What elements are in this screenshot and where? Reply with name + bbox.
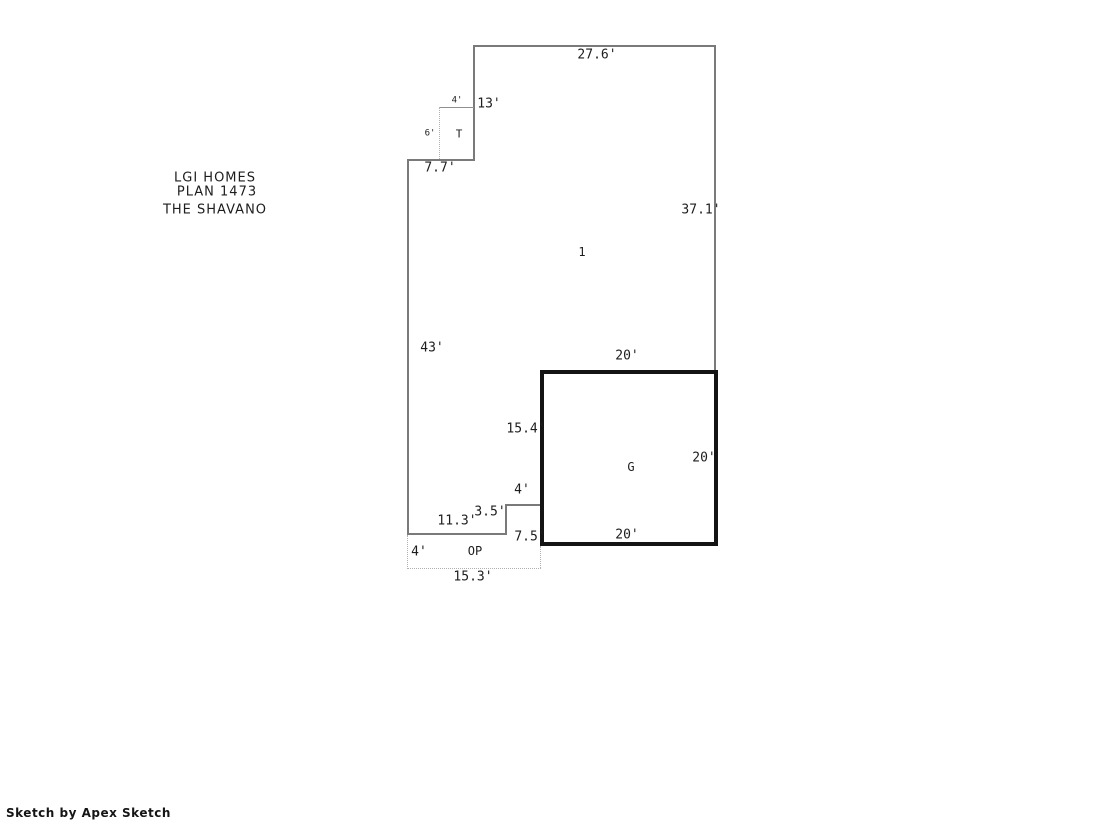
dim-jog-height: 3.5' <box>474 506 505 519</box>
dim-upper-step: 7.7' <box>424 162 455 175</box>
dim-porch-depth: 4' <box>411 546 427 559</box>
dim-porch-width: 15.3' <box>453 571 492 584</box>
dim-porch-right: 7.5' <box>514 531 545 544</box>
wall-left <box>407 159 409 535</box>
wall-jog-horizontal <box>505 504 542 506</box>
dim-garage-right: 20' <box>692 452 715 465</box>
sketch-credit: Sketch by Apex Sketch <box>6 806 171 820</box>
stoop-left-dotted-line <box>439 107 440 159</box>
wall-upper-left <box>473 45 475 161</box>
dim-upper-left-wall: 13' <box>477 98 500 111</box>
stoop-top-line <box>439 107 474 108</box>
porch-area-label: OP <box>468 545 482 557</box>
plan-title-line1: LGI HOMES <box>174 172 256 185</box>
sketch-canvas: LGI HOMES PLAN 1473 THE SHAVANO 27.6' 13… <box>0 0 1119 821</box>
porch-right-dotted-line <box>540 546 541 568</box>
plan-title-line3: THE SHAVANO <box>163 204 267 217</box>
dim-right-wall: 37.1' <box>681 204 720 217</box>
dim-garage-top: 20' <box>615 350 638 363</box>
stoop-area-label: T <box>456 129 463 140</box>
garage-area-label: G <box>627 461 634 473</box>
dim-garage-bottom: 20' <box>615 529 638 542</box>
wall-bottom <box>407 533 507 535</box>
dim-top-wall: 27.6' <box>577 49 616 62</box>
dim-garage-left-upper: 15.4' <box>506 423 545 436</box>
dim-stoop-depth: 6' <box>425 130 436 139</box>
dim-jog-width: 4' <box>514 484 530 497</box>
dim-left-wall: 43' <box>420 342 443 355</box>
porch-left-dotted-line <box>407 535 408 569</box>
dim-stoop-width: 4' <box>452 97 463 106</box>
living-area-label: 1 <box>578 246 585 258</box>
dim-bottom-wall: 11.3' <box>437 515 476 528</box>
plan-title-line2: PLAN 1473 <box>177 186 257 199</box>
